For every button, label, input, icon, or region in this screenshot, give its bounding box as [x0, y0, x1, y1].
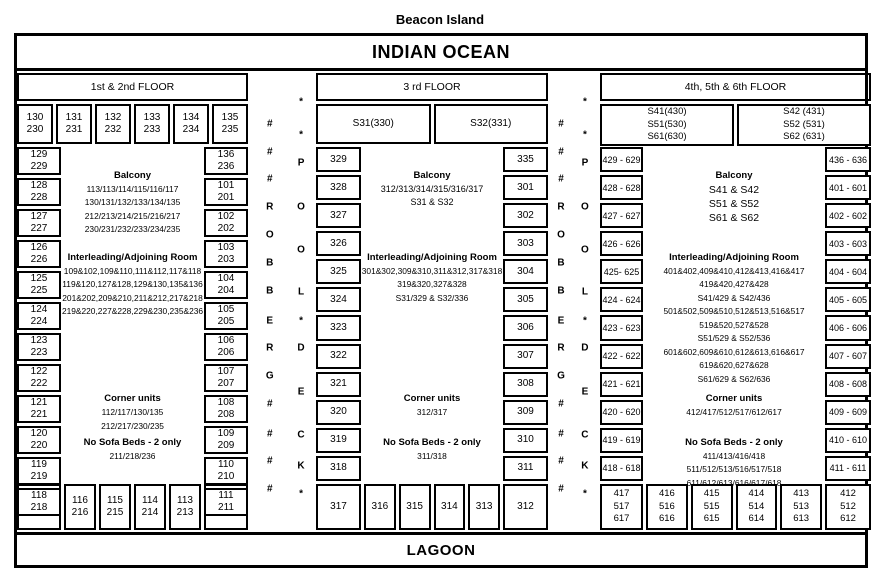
room-cell: 126 226	[17, 240, 61, 268]
strip-symbol: #	[558, 146, 564, 157]
plan-outline: INDIAN OCEAN 1st & 2nd FLOOR 130 230131 …	[14, 33, 868, 568]
room-cell: 115 215	[99, 484, 131, 530]
strip-symbol: O	[581, 202, 589, 213]
room-cell: 128 228	[17, 178, 61, 206]
plan-body: 1st & 2nd FLOOR 130 230131 231132 232133…	[17, 71, 865, 532]
right-room-column: 335301302303304305306307308309310311	[503, 147, 548, 481]
note-no-sofa-beds: No Sofa Beds - 2 only 411/413/416/418 51…	[643, 436, 825, 491]
note-lines: 113/113/114/115/116/117 130/131/132/133/…	[61, 183, 204, 237]
room-cell: 116 216	[64, 484, 96, 530]
room-cell: 414 514 614	[736, 484, 778, 530]
room-cell: 421 - 621	[600, 372, 643, 397]
room-cell: 313	[468, 484, 500, 530]
left-room-column: 429 - 629428 - 628427 - 627426 - 626425-…	[600, 147, 643, 481]
room-cell: 131 231	[56, 104, 92, 144]
indian-ocean-band: INDIAN OCEAN	[17, 36, 865, 71]
room-cell: 132 232	[95, 104, 131, 144]
room-cell: 106 206	[204, 333, 248, 361]
room-cell: 327	[316, 203, 361, 228]
notes-area: Balcony 312/313/314/315/316/317 S31 & S3…	[361, 147, 503, 481]
strip-symbol: *	[299, 315, 303, 326]
room-cell: 401 - 601	[825, 175, 871, 200]
strip-symbol: #	[267, 119, 273, 130]
note-lines: 311/318	[361, 450, 503, 464]
room-cell: 103 203	[204, 240, 248, 268]
strip-symbol: O	[581, 244, 589, 255]
room-cell: 309	[503, 400, 548, 425]
room-cell: 407 - 607	[825, 344, 871, 369]
room-cell: 415 515 615	[691, 484, 733, 530]
room-cell: 308	[503, 372, 548, 397]
strip-symbol: P	[582, 158, 589, 169]
room-cell: 329	[316, 147, 361, 172]
room-cell: 303	[503, 231, 548, 256]
section-floor-1-2: 1st & 2nd FLOOR 130 230131 231132 232133…	[17, 73, 248, 530]
bottom-room-row: 317316315314313312	[316, 484, 548, 530]
note-lines: 412/417/512/517/612/617	[643, 406, 825, 420]
right-room-column: 136 236101 201102 202103 203104 204105 2…	[204, 147, 248, 481]
note-heading: Corner units	[61, 392, 204, 406]
suite-cell: S41(430) S51(530) S61(630)	[600, 104, 734, 146]
note-balcony: Balcony S41 & S42 S51 & S52 S61 & S62	[643, 169, 825, 225]
section-header: 3 rd FLOOR	[316, 73, 548, 101]
room-cell: 109 209	[204, 426, 248, 454]
room-cell: 420 - 620	[600, 400, 643, 425]
strip-symbol: K	[297, 461, 304, 472]
note-interleading: Interleading/Adjoining Room 109&102,109&…	[61, 251, 204, 319]
room-cell: 319	[316, 428, 361, 453]
strip-symbol: #	[558, 174, 564, 185]
note-lines: S41 & S42 S51 & S52 S61 & S62	[643, 183, 825, 225]
strip-symbol: *	[583, 488, 587, 499]
note-heading: No Sofa Beds - 2 only	[61, 436, 204, 450]
strip-symbol: O	[297, 244, 305, 255]
strip-symbol: #	[267, 399, 273, 410]
strip-symbol: R	[266, 202, 273, 213]
note-interleading: Interleading/Adjoining Room 301&302,309&…	[361, 251, 503, 306]
room-cell: 119 219	[17, 457, 61, 485]
room-cell: 427 - 627	[600, 203, 643, 228]
strip-symbol: *	[583, 315, 587, 326]
strip-symbol: B	[266, 257, 273, 268]
strip-symbol: O	[297, 202, 305, 213]
strip-symbol: *	[299, 130, 303, 141]
top-room-row: 130 230131 231132 232133 233134 234135 2…	[17, 104, 248, 144]
room-cell: 310	[503, 428, 548, 453]
room-cell: 122 222	[17, 364, 61, 392]
strip-symbol: E	[558, 315, 565, 326]
room-cell: 305	[503, 287, 548, 312]
room-cell: 418 - 618	[600, 456, 643, 481]
strip-symbol: *	[583, 97, 587, 108]
lagoon-band: LAGOON	[17, 532, 865, 565]
room-cell: 408 - 608	[825, 372, 871, 397]
room-cell: 130 230	[17, 104, 53, 144]
room-cell: 328	[316, 175, 361, 200]
strip-symbol: D	[581, 343, 588, 354]
room-cell: 111 211	[204, 488, 248, 516]
room-cell: 436 - 636	[825, 147, 871, 172]
room-cell: 102 202	[204, 209, 248, 237]
note-heading: Balcony	[61, 169, 204, 183]
room-cell: 419 - 619	[600, 428, 643, 453]
room-cell: 323	[316, 315, 361, 340]
note-balcony: Balcony 312/313/314/315/316/317 S31 & S3…	[361, 169, 503, 210]
room-cell: 123 223	[17, 333, 61, 361]
strip-symbol: #	[558, 428, 564, 439]
room-cell: 127 227	[17, 209, 61, 237]
room-cell: 312	[503, 484, 548, 530]
suite-cell: S42 (431) S52 (531) S62 (631)	[737, 104, 871, 146]
room-cell: 403 - 603	[825, 231, 871, 256]
note-heading: Balcony	[361, 169, 503, 183]
strip-symbol: P	[298, 158, 305, 169]
mid-band: 429 - 629428 - 628427 - 627426 - 626425-…	[600, 147, 871, 481]
room-cell: 404 - 604	[825, 259, 871, 284]
note-corner-units: Corner units 312/317	[361, 392, 503, 420]
room-cell: 135 235	[212, 104, 248, 144]
strip-symbol: K	[581, 461, 588, 472]
section-floor-4-5-6: 4th, 5th & 6th FLOOR S41(430) S51(530) S…	[600, 73, 871, 530]
beacon-island-floor-plan: Beacon Island INDIAN OCEAN 1st & 2nd FLO…	[0, 0, 880, 584]
room-cell: 107 207	[204, 364, 248, 392]
strip-symbol: D	[297, 343, 304, 354]
strip-symbol: #	[558, 399, 564, 410]
strip-symbol: R	[557, 202, 564, 213]
room-cell: 425- 625	[600, 259, 643, 284]
room-cell: 321	[316, 372, 361, 397]
room-cell: 411 - 611	[825, 456, 871, 481]
room-cell: 307	[503, 344, 548, 369]
room-cell: 322	[316, 344, 361, 369]
room-cell: 409 - 609	[825, 400, 871, 425]
strip-symbol: #	[267, 428, 273, 439]
note-heading: No Sofa Beds - 2 only	[361, 436, 503, 450]
note-lines: 109&102,109&110,111&112,117&118 119&120,…	[61, 265, 204, 319]
room-cell: 129 229	[17, 147, 61, 175]
room-cell: 301	[503, 175, 548, 200]
note-heading: Interleading/Adjoining Room	[61, 251, 204, 265]
room-cell: 124 224	[17, 302, 61, 330]
strip-symbol: #	[558, 483, 564, 494]
mid-band: 329328327326325324323322321320319318 Bal…	[316, 147, 548, 481]
section-header: 4th, 5th & 6th FLOOR	[600, 73, 871, 101]
room-cell: 422 - 622	[600, 344, 643, 369]
suite-cell: S31(330)	[316, 104, 431, 144]
room-cell: 311	[503, 456, 548, 481]
strip-symbol: B	[266, 286, 273, 297]
mid-band: 129 229128 228127 227126 226125 225124 2…	[17, 147, 248, 481]
strip-symbol: #	[267, 146, 273, 157]
note-interleading: Interleading/Adjoining Room 401&402,409&…	[643, 251, 825, 387]
note-balcony: Balcony 113/113/114/115/116/117 130/131/…	[61, 169, 204, 237]
section-header: 1st & 2nd FLOOR	[17, 73, 248, 101]
room-cell: 134 234	[173, 104, 209, 144]
room-cell: 320	[316, 400, 361, 425]
note-lines: 301&302,309&310,311&312,317&318 319&320,…	[361, 265, 503, 306]
room-cell: 413 513 613	[780, 484, 822, 530]
suite-row: S31(330)S32(331)	[316, 104, 548, 144]
room-cell: 101 201	[204, 178, 248, 206]
room-cell: 314	[434, 484, 466, 530]
note-lines: 312/313/314/315/316/317 S31 & S32	[361, 183, 503, 210]
strip-symbol: B	[557, 286, 564, 297]
note-corner-units: Corner units 412/417/512/517/612/617	[643, 392, 825, 420]
left-room-column: 329328327326325324323322321320319318	[316, 147, 361, 481]
notes-area: Balcony 113/113/114/115/116/117 130/131/…	[61, 147, 204, 481]
strip-symbol: #	[558, 456, 564, 467]
room-cell: 423 - 623	[600, 315, 643, 340]
room-cell: 317	[316, 484, 361, 530]
strip-symbol: R	[266, 343, 273, 354]
room-cell: 121 221	[17, 395, 61, 423]
bottom-room-row: 417 517 617416 516 616415 515 615414 514…	[600, 484, 871, 530]
room-cell: 410 - 610	[825, 428, 871, 453]
room-cell: 335	[503, 147, 548, 172]
section-floor-3: 3 rd FLOOR S31(330)S32(331) 329328327326…	[316, 73, 548, 530]
room-cell: 136 236	[204, 147, 248, 175]
room-cell: 315	[399, 484, 431, 530]
room-cell: 324	[316, 287, 361, 312]
note-no-sofa-beds: No Sofa Beds - 2 only 311/318	[361, 436, 503, 464]
note-heading: Interleading/Adjoining Room	[643, 251, 825, 265]
strip-symbol: #	[267, 483, 273, 494]
right-room-column: 436 - 636401 - 601402 - 602403 - 603404 …	[825, 147, 871, 481]
strip-symbol: O	[557, 230, 565, 241]
room-cell: 429 - 629	[600, 147, 643, 172]
note-heading: No Sofa Beds - 2 only	[643, 436, 825, 450]
strip-symbol: L	[298, 287, 304, 298]
room-cell: 118 218	[17, 488, 61, 516]
room-cell: 402 - 602	[825, 203, 871, 228]
room-cell: 318	[316, 456, 361, 481]
suite-cell: S32(331)	[434, 104, 549, 144]
strip-symbol: R	[557, 343, 564, 354]
room-cell: 424 - 624	[600, 287, 643, 312]
notes-area: Balcony S41 & S42 S51 & S52 S61 & S62 In…	[643, 147, 825, 481]
room-cell: 426 - 626	[600, 231, 643, 256]
room-cell: 125 225	[17, 271, 61, 299]
room-cell: 406 - 606	[825, 315, 871, 340]
strip-symbol: E	[298, 387, 305, 398]
room-cell: 316	[364, 484, 396, 530]
room-cell: 105 205	[204, 302, 248, 330]
room-cell: 412 512 612	[825, 484, 871, 530]
strip-symbol: C	[581, 429, 588, 440]
room-cell: 416 516 616	[646, 484, 688, 530]
strip-symbol: #	[267, 174, 273, 185]
room-cell: 306	[503, 315, 548, 340]
note-lines: 112/117/130/135 212/217/230/235	[61, 406, 204, 433]
suite-row: S41(430) S51(530) S61(630)S42 (431) S52 …	[600, 104, 871, 144]
note-lines: 312/317	[361, 406, 503, 420]
room-cell: 108 208	[204, 395, 248, 423]
robberg-pool-deck-strip: ###ROBBERG####**POOL*DECK*	[248, 71, 316, 532]
strip-symbol: #	[267, 456, 273, 467]
note-lines: 411/413/416/418 511/512/513/516/517/518 …	[643, 450, 825, 491]
room-cell: 120 220	[17, 426, 61, 454]
note-lines: 401&402,409&410,412&413,416&417 419&420,…	[643, 265, 825, 387]
room-cell: 304	[503, 259, 548, 284]
strip-symbol: E	[266, 315, 273, 326]
strip-symbol: *	[299, 488, 303, 499]
strip-symbol: L	[582, 287, 588, 298]
room-cell: 104 204	[204, 271, 248, 299]
strip-symbol: G	[557, 370, 565, 381]
note-heading: Corner units	[361, 392, 503, 406]
note-heading: Interleading/Adjoining Room	[361, 251, 503, 265]
strip-symbol: B	[557, 257, 564, 268]
strip-symbol: E	[582, 387, 589, 398]
left-room-column: 129 229128 228127 227126 226125 225124 2…	[17, 147, 61, 481]
note-corner-units: Corner units 112/117/130/135 212/217/230…	[61, 392, 204, 433]
page-title: Beacon Island	[0, 12, 880, 27]
room-cell: 326	[316, 231, 361, 256]
room-cell: 325	[316, 259, 361, 284]
strip-symbol: C	[297, 429, 304, 440]
note-lines: 211/218/236	[61, 450, 204, 464]
room-cell: 113 213	[169, 484, 201, 530]
room-cell: 133 233	[134, 104, 170, 144]
note-heading: Corner units	[643, 392, 825, 406]
strip-symbol: *	[583, 130, 587, 141]
strip-symbol: *	[299, 97, 303, 108]
note-no-sofa-beds: No Sofa Beds - 2 only 211/218/236	[61, 436, 204, 464]
room-cell: 417 517 617	[600, 484, 643, 530]
room-cell: 405 - 605	[825, 287, 871, 312]
strip-symbol: O	[266, 230, 274, 241]
robberg-pool-deck-strip: ###ROBBERG####**POOL*DECK*	[548, 71, 600, 532]
room-cell: 110 210	[204, 457, 248, 485]
note-heading: Balcony	[643, 169, 825, 183]
strip-symbol: G	[266, 370, 274, 381]
room-cell: 302	[503, 203, 548, 228]
room-cell: 428 - 628	[600, 175, 643, 200]
room-cell: 114 214	[134, 484, 166, 530]
strip-symbol: #	[558, 119, 564, 130]
